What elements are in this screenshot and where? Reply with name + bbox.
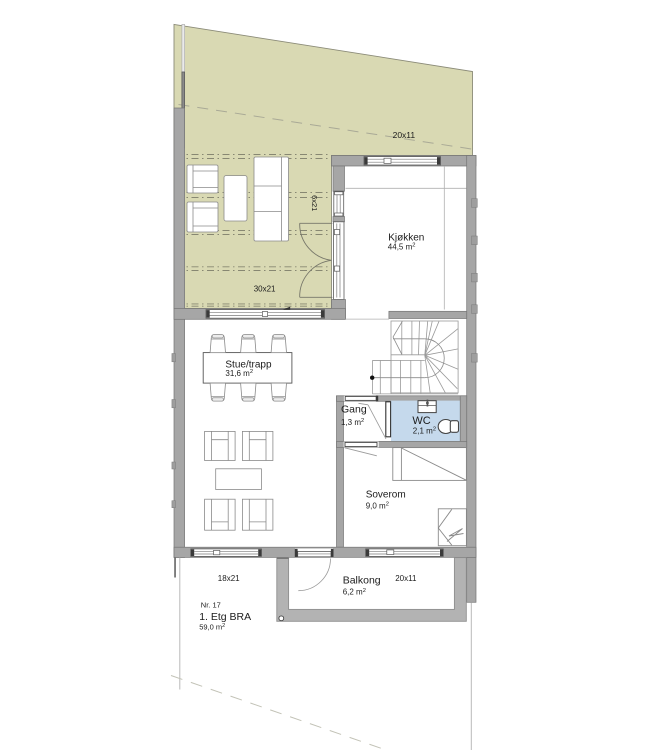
- svg-text:31,6 m2: 31,6 m2: [225, 369, 253, 378]
- svg-text:1,3 m2: 1,3 m2: [341, 418, 364, 427]
- svg-text:18x21: 18x21: [218, 574, 240, 583]
- svg-text:2,1 m2: 2,1 m2: [413, 426, 436, 435]
- svg-text:30x21: 30x21: [254, 285, 276, 294]
- svg-text:59,0 m2: 59,0 m2: [199, 623, 225, 632]
- svg-text:20x11: 20x11: [393, 130, 416, 140]
- svg-text:1. Etg BRA: 1. Etg BRA: [199, 611, 251, 623]
- svg-text:6,2 m2: 6,2 m2: [343, 588, 366, 597]
- svg-text:44,5 m2: 44,5 m2: [388, 242, 416, 251]
- svg-text:WC: WC: [412, 415, 430, 427]
- svg-text:20x11: 20x11: [395, 574, 417, 583]
- svg-text:6x21: 6x21: [310, 195, 319, 211]
- svg-text:Soverom: Soverom: [366, 490, 406, 501]
- svg-text:9,0 m2: 9,0 m2: [366, 501, 389, 510]
- svg-text:Balkong: Balkong: [343, 574, 381, 586]
- svg-text:Gang: Gang: [341, 404, 367, 416]
- svg-text:Nr. 17: Nr. 17: [201, 600, 221, 609]
